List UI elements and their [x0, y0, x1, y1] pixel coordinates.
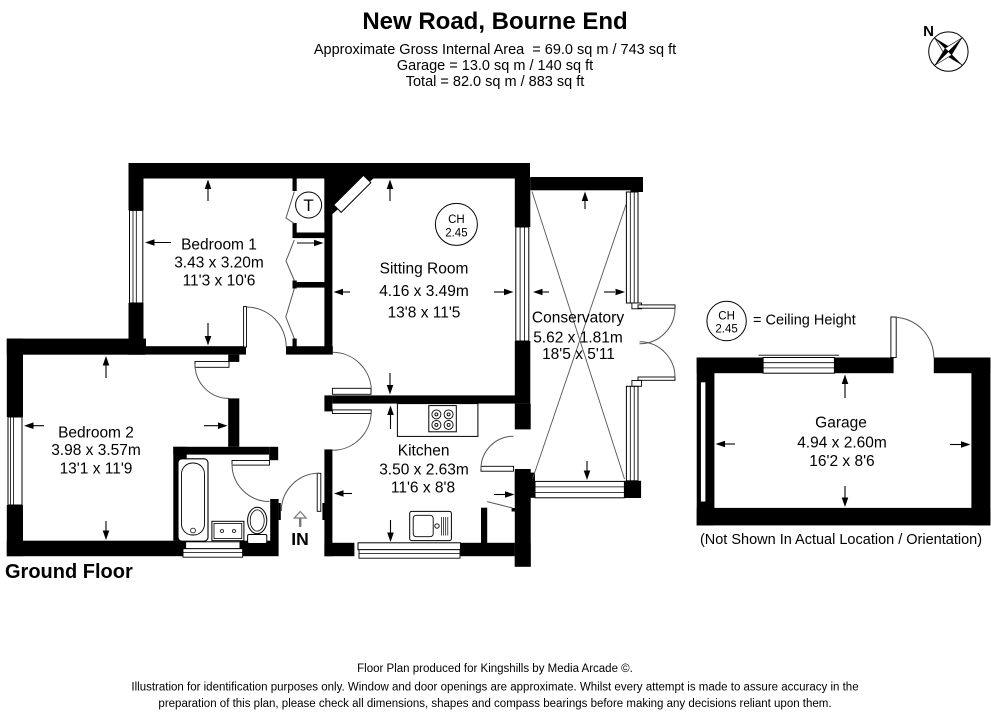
svg-text:3.50 x 2.63m: 3.50 x 2.63m [379, 462, 469, 479]
svg-text:Approximate Gross Internal Are: Approximate Gross Internal Area = 69.0 s… [314, 42, 676, 58]
svg-text:Ground Floor: Ground Floor [5, 561, 133, 583]
svg-text:3.98 x 3.57m: 3.98 x 3.57m [51, 442, 141, 459]
svg-text:18'5 x 5'11: 18'5 x 5'11 [542, 346, 615, 363]
svg-text:Illustration for identificatio: Illustration for identification purposes… [131, 682, 858, 694]
svg-text:New Road, Bourne End: New Road, Bourne End [362, 8, 627, 35]
svg-text:preparation of this plan, plea: preparation of this plan, please check a… [158, 698, 831, 710]
svg-text:IN: IN [291, 529, 309, 549]
svg-text:Bedroom 2: Bedroom 2 [58, 425, 134, 442]
svg-text:= Ceiling Height: = Ceiling Height [753, 313, 856, 329]
svg-text:(Not Shown In Actual Location: (Not Shown In Actual Location / Orientat… [700, 532, 982, 548]
svg-text:Garage = 13.0 sq m / 140 sq ft: Garage = 13.0 sq m / 140 sq ft [397, 58, 593, 74]
svg-text:Kitchen: Kitchen [398, 443, 450, 460]
svg-text:13'8 x 11'5: 13'8 x 11'5 [388, 305, 461, 322]
svg-text:5.62 x 1.81m: 5.62 x 1.81m [533, 330, 623, 347]
svg-text:13'1 x 11'9: 13'1 x 11'9 [60, 461, 133, 478]
svg-text:Sitting Room: Sitting Room [380, 261, 469, 278]
svg-text:CH: CH [448, 214, 465, 226]
svg-text:4.16 x 3.49m: 4.16 x 3.49m [379, 283, 469, 300]
svg-text:3.43 x 3.20m: 3.43 x 3.20m [174, 255, 264, 272]
svg-text:Bedroom 1: Bedroom 1 [181, 237, 257, 254]
svg-text:Total = 82.0 sq m / 883 sq ft: Total = 82.0 sq m / 883 sq ft [406, 74, 585, 90]
svg-text:Floor Plan produced for Kingsh: Floor Plan produced for Kingshills by Me… [357, 663, 633, 675]
svg-text:16'2 x 8'6: 16'2 x 8'6 [809, 453, 874, 470]
svg-text:N: N [923, 23, 934, 40]
svg-text:Conservatory: Conservatory [532, 310, 624, 327]
svg-text:2.45: 2.45 [445, 228, 467, 240]
svg-text:Garage: Garage [815, 415, 867, 432]
svg-text:4.94 x 2.60m: 4.94 x 2.60m [797, 435, 887, 452]
svg-text:11'3 x 10'6: 11'3 x 10'6 [183, 273, 256, 290]
svg-text:11'6 x 8'8: 11'6 x 8'8 [391, 480, 455, 497]
svg-text:T: T [303, 196, 313, 215]
svg-text:2.45: 2.45 [715, 324, 737, 336]
svg-text:CH: CH [718, 311, 735, 323]
